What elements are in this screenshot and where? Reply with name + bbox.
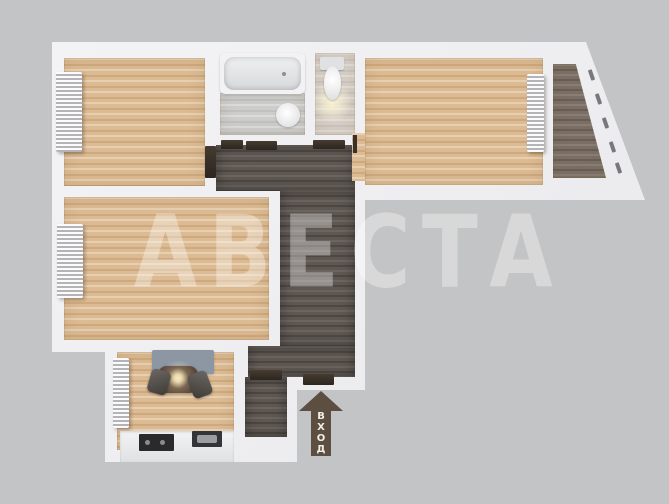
wc-door (313, 140, 345, 149)
living-room-floor (365, 58, 543, 185)
sink-icon (276, 103, 300, 127)
arrow-body: ВХОД (311, 410, 331, 456)
radiator-icon (56, 72, 82, 152)
bathtub-basin (224, 57, 301, 90)
entrance-door (303, 374, 334, 385)
toilet-icon (324, 66, 341, 100)
vestibule-floor (245, 377, 287, 437)
radiator-icon (57, 224, 83, 298)
kitchen-door-threshold (250, 370, 282, 380)
radiator-icon (527, 74, 544, 152)
floor-plan-canvas: АВЕСТА ВХОД (0, 0, 669, 504)
radiator-icon (113, 358, 129, 428)
hallway-floor-top (216, 145, 355, 191)
kitchen-sink-icon (192, 431, 222, 447)
hallway-door-threshold (246, 141, 277, 150)
burner-icon (160, 440, 165, 445)
burner-icon (145, 440, 150, 445)
bathtub-faucet-icon (282, 72, 286, 76)
entrance-label: ВХОД (316, 411, 327, 455)
living-room-door-leaf (353, 135, 357, 153)
bedroom-top-left-door (205, 146, 216, 178)
bathroom-door (221, 140, 243, 149)
entrance-arrow: ВХОД (299, 391, 343, 457)
bedroom-top-left-floor (64, 58, 205, 186)
watermark-text: АВЕСТА (134, 194, 564, 311)
arrow-head-icon (299, 391, 343, 411)
stove-icon (139, 434, 174, 451)
bathtub-icon (220, 53, 305, 94)
sink-basin (197, 435, 217, 443)
